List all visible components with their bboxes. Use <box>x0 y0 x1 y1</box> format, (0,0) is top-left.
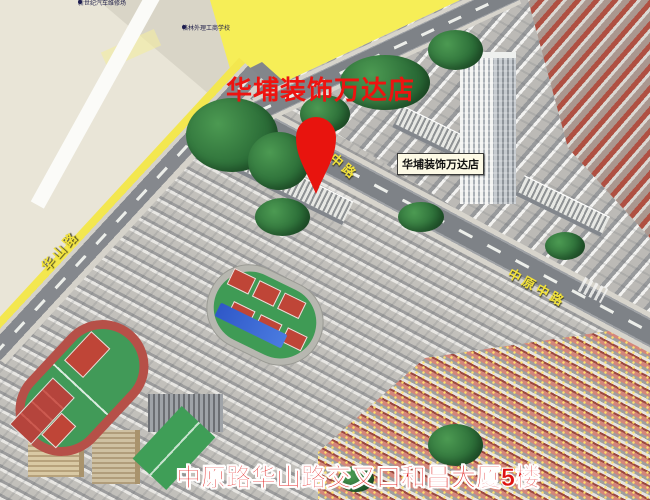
map-canvas: 新世纪汽车维修场 格林外理工商学校 <box>0 0 650 500</box>
highrise-tower <box>460 58 516 204</box>
poi-label: 新世纪汽车维修场 <box>78 0 126 7</box>
tower-face <box>460 58 494 204</box>
location-pin-icon <box>296 116 336 194</box>
poi-label: 格林外理工商学校 <box>182 23 230 32</box>
address-caption: 中原路华山路交叉口和昌大厦5楼 <box>176 458 540 494</box>
store-title: 华埔装饰万达店 <box>226 70 415 107</box>
tree-cluster <box>428 30 483 70</box>
tree-cluster <box>255 198 310 236</box>
tree-cluster <box>398 202 444 232</box>
tower-face-shadow <box>494 58 516 204</box>
store-label-box: 华埔装饰万达店 <box>397 153 484 175</box>
tree-cluster <box>545 232 585 260</box>
